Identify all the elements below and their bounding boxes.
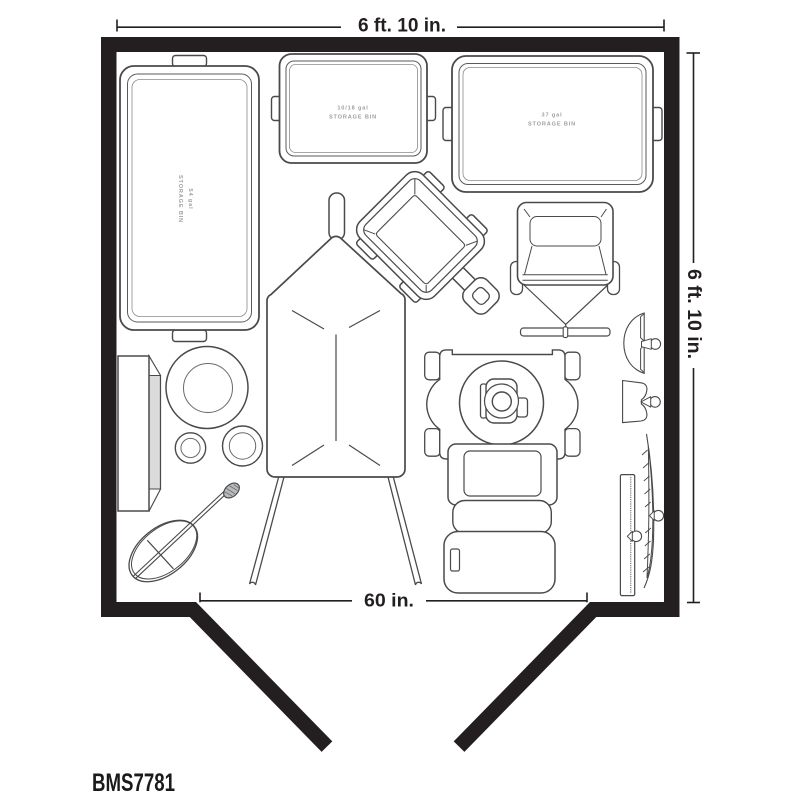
svg-text:37 gal: 37 gal	[542, 113, 563, 119]
svg-text:10/18 gal: 10/18 gal	[337, 106, 368, 112]
svg-text:STORAGE BIN: STORAGE BIN	[528, 122, 576, 128]
svg-text:60 in.: 60 in.	[364, 590, 414, 611]
svg-text:STORAGE BIN: STORAGE BIN	[329, 115, 377, 121]
svg-text:54 gal: 54 gal	[187, 189, 193, 210]
svg-text:BMS7781: BMS7781	[92, 769, 175, 797]
svg-text:6 ft. 10 in.: 6 ft. 10 in.	[683, 269, 704, 359]
svg-text:6 ft. 10 in.: 6 ft. 10 in.	[358, 16, 446, 37]
svg-text:STORAGE BIN: STORAGE BIN	[177, 175, 183, 223]
